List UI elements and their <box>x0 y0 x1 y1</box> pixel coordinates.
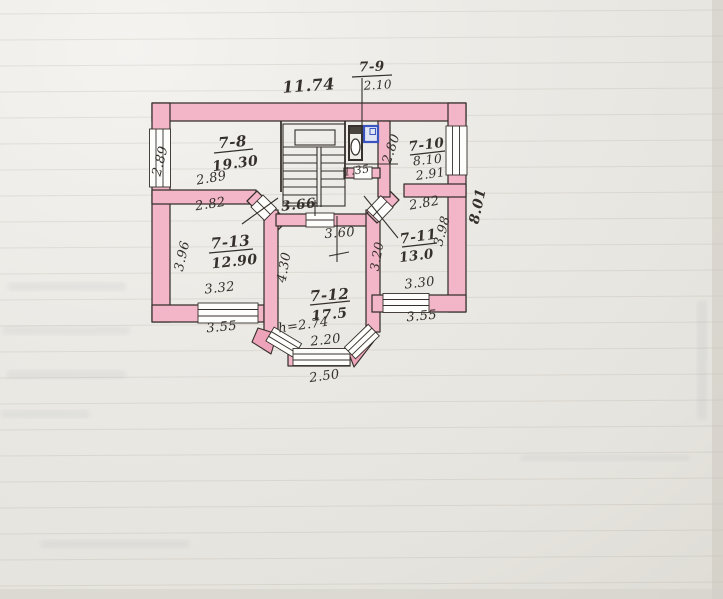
scanned-paper-page: 11.74 7-9 2.10 2.89 7-8 19.30 2.89 2.80 … <box>0 0 723 599</box>
dim-7-13-window: 3.55 <box>206 319 238 337</box>
toilet-tank <box>350 127 361 134</box>
room-7-13-area: 12.90 <box>211 252 259 273</box>
dim-7-10-width: 2.91 <box>414 164 446 183</box>
dim-hall-width: 3.66 <box>280 195 316 215</box>
page-edge-right <box>712 0 723 599</box>
outer-wall-top <box>152 103 466 121</box>
room-7-11-area: 13.0 <box>398 246 435 266</box>
dim-7-13-bottom: 3.32 <box>204 279 236 297</box>
dim-7-12-top: 3.60 <box>324 225 356 242</box>
room-7-12-number: 7-12 <box>309 285 350 306</box>
bleed-through-smudges <box>0 282 707 548</box>
dim-bay-outer: 2.50 <box>307 367 340 386</box>
page-edge-bottom <box>0 589 723 599</box>
dim-top-width: 11.74 <box>282 74 336 97</box>
dim-bay-inner: 2.20 <box>309 331 342 349</box>
dim-7-13-left: 3.96 <box>172 240 193 273</box>
bathroom-fixtures <box>349 126 378 160</box>
window-right-wall <box>446 126 467 175</box>
toilet-bowl <box>351 139 360 155</box>
sink-icon <box>364 126 378 142</box>
window-bay-center <box>293 349 350 366</box>
door-7-12 <box>306 213 334 227</box>
room-7-9-area: 2.10 <box>362 77 392 93</box>
dim-7-8-width: 2.89 <box>194 169 228 189</box>
dim-7-11-window: 3.55 <box>406 308 438 326</box>
dim-7-11-bottom: 3.30 <box>404 274 436 292</box>
room-7-8-number: 7-8 <box>218 132 248 152</box>
room-7-9-number: 7-9 <box>359 59 386 76</box>
floor-plan-drawing: 11.74 7-9 2.10 2.89 7-8 19.30 2.89 2.80 … <box>0 0 723 599</box>
tick-cross <box>329 252 349 256</box>
